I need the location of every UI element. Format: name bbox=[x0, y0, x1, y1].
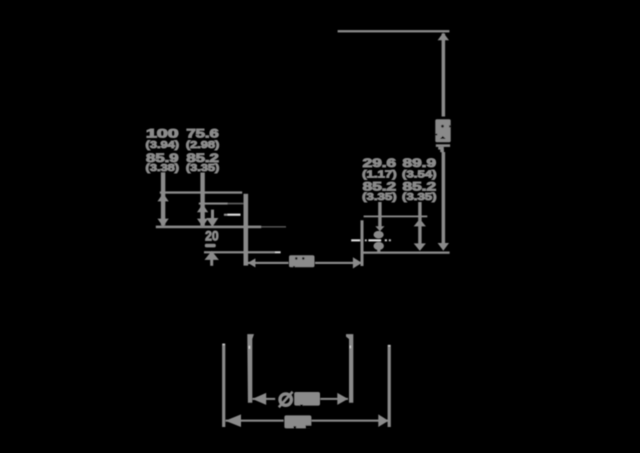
svg-text:(3.35): (3.35) bbox=[186, 163, 220, 174]
svg-text:(3.35): (3.35) bbox=[402, 192, 437, 203]
svg-text:(1.17): (1.17) bbox=[362, 170, 397, 181]
svg-text:(3.38): (3.38) bbox=[146, 163, 180, 174]
svg-text:29.6: 29.6 bbox=[363, 158, 397, 170]
svg-text:(2.98): (2.98) bbox=[186, 140, 220, 151]
svg-text:(3.94): (3.94) bbox=[146, 140, 180, 151]
svg-text:(3.54): (3.54) bbox=[402, 170, 437, 181]
svg-text:20: 20 bbox=[205, 229, 219, 244]
svg-text:89.9: 89.9 bbox=[403, 158, 437, 170]
svg-text:75.6: 75.6 bbox=[186, 129, 219, 141]
svg-text:(3.35): (3.35) bbox=[362, 192, 397, 203]
svg-text:100: 100 bbox=[146, 129, 179, 141]
